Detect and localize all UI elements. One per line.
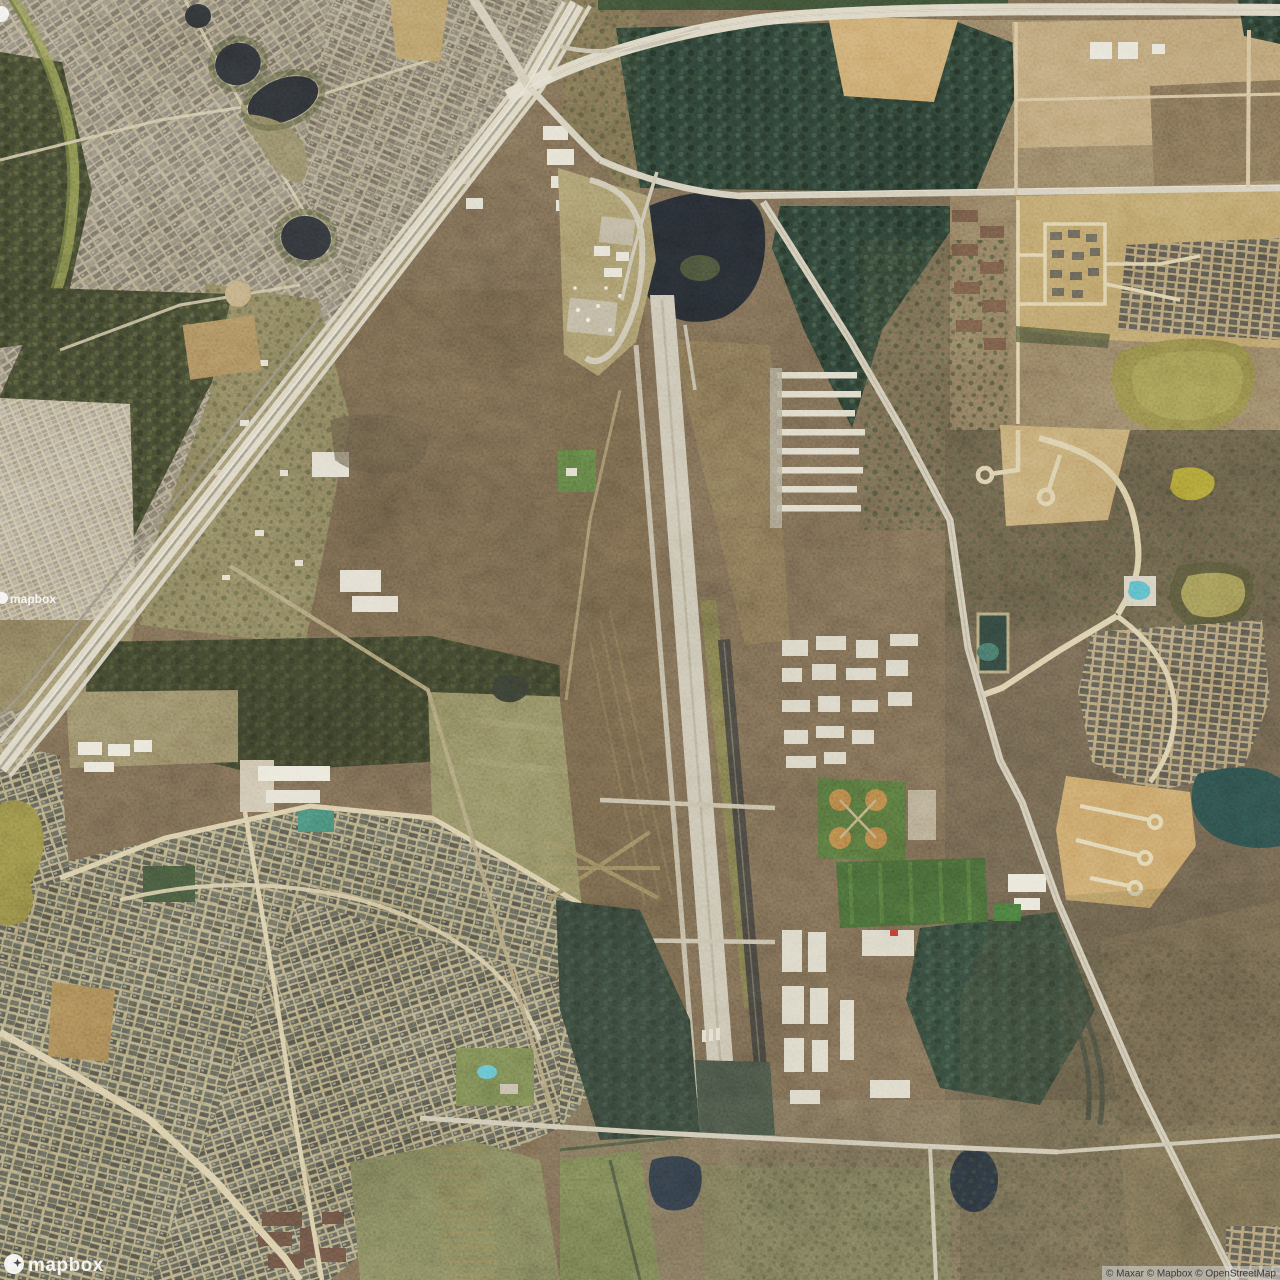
svg-text:mapbox: mapbox [28, 1255, 104, 1276]
svg-text:mapbox: mapbox [10, 592, 56, 606]
svg-text:© Maxar © Mapbox © OpenStreetM: © Maxar © Mapbox © OpenStreetMap [1106, 1269, 1276, 1280]
